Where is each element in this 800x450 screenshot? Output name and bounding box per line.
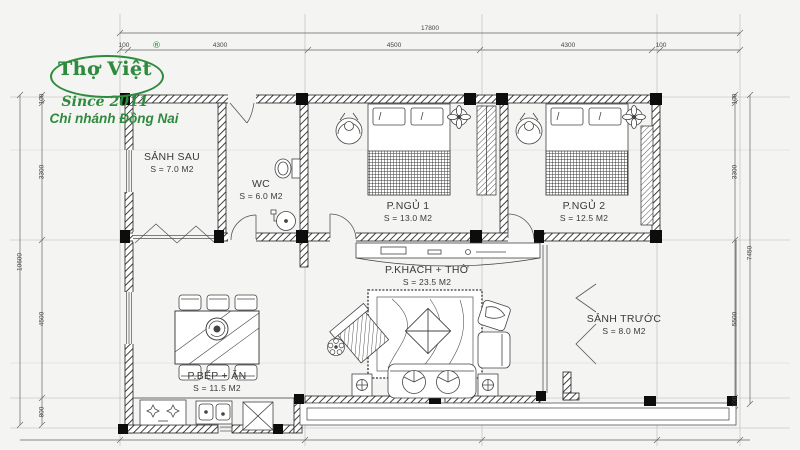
dim-left-seg-3: 800: [39, 407, 46, 418]
chair-icon-2: [516, 113, 542, 144]
altar-cabinet: [356, 243, 540, 266]
floor-plan-page: Thợ Việt ® Since 2011 Chi nhánh Đồng Nai…: [0, 0, 800, 450]
room-label-p-ngu-2: P.NGỦ 2 S = 12.5 M2: [560, 200, 608, 224]
front-door: [543, 245, 547, 393]
flower-table-icon: [328, 339, 345, 356]
dim-right-seg-2: 5500: [732, 312, 739, 326]
logo-branch-text: Chi nhánh Đồng Nai: [14, 111, 214, 126]
wardrobe-2: [641, 126, 653, 225]
dim-right-seg-1: 3300: [732, 165, 739, 179]
dim-top-seg-2: 4500: [387, 42, 401, 49]
toilet-icon: [275, 159, 300, 178]
room-label-sanh-truoc: SẢNH TRƯỚC S = 8.0 M2: [587, 313, 661, 337]
logo-brand-text: Thợ Việt: [28, 58, 182, 80]
room-label-p-khach: P.KHÁCH + THỜ S = 23.5 M2: [385, 264, 469, 288]
bed-1: [368, 104, 450, 195]
deco-box-left: [352, 374, 372, 396]
shower-icon: [271, 210, 296, 231]
room-label-p-ngu-1: P.NGỦ 1 S = 13.0 M2: [384, 200, 432, 224]
bed-2: [546, 104, 628, 195]
logo-tagline: Since 2011: [28, 94, 182, 110]
room-label-sanh-sau: SẢNH SAU S = 7.0 M2: [144, 151, 200, 175]
chair-icon-1: [336, 113, 362, 144]
wardrobe-1: [477, 106, 496, 195]
dim-top-seg-4: 100: [656, 42, 667, 49]
registered-mark: ®: [152, 41, 161, 51]
room-label-p-bep: P.BẾP + ĂN S = 11.5 M2: [188, 370, 247, 394]
room-label-wc: WC S = 6.0 M2: [239, 178, 282, 202]
dim-top-total: 17800: [421, 25, 439, 32]
dim-right-total: 7450: [747, 246, 754, 260]
deco-box-right: [478, 374, 498, 396]
dim-top-seg-3: 4300: [561, 42, 575, 49]
armchair-right: [477, 299, 511, 368]
sofa: [388, 364, 476, 398]
dim-right-seg-0: 100: [732, 94, 739, 105]
ceiling-fan-icon-1: [448, 106, 471, 129]
dining-table: [175, 311, 259, 364]
dim-top-seg-1: 4300: [213, 42, 227, 49]
dim-left-seg-2: 4500: [39, 312, 46, 326]
dim-left-seg-1: 3300: [39, 165, 46, 179]
dim-right-seg-3: 100: [732, 397, 739, 408]
company-logo: Thợ Việt ® Since 2011 Chi nhánh Đồng Nai: [28, 38, 208, 142]
dim-left-total: 10600: [17, 253, 24, 271]
